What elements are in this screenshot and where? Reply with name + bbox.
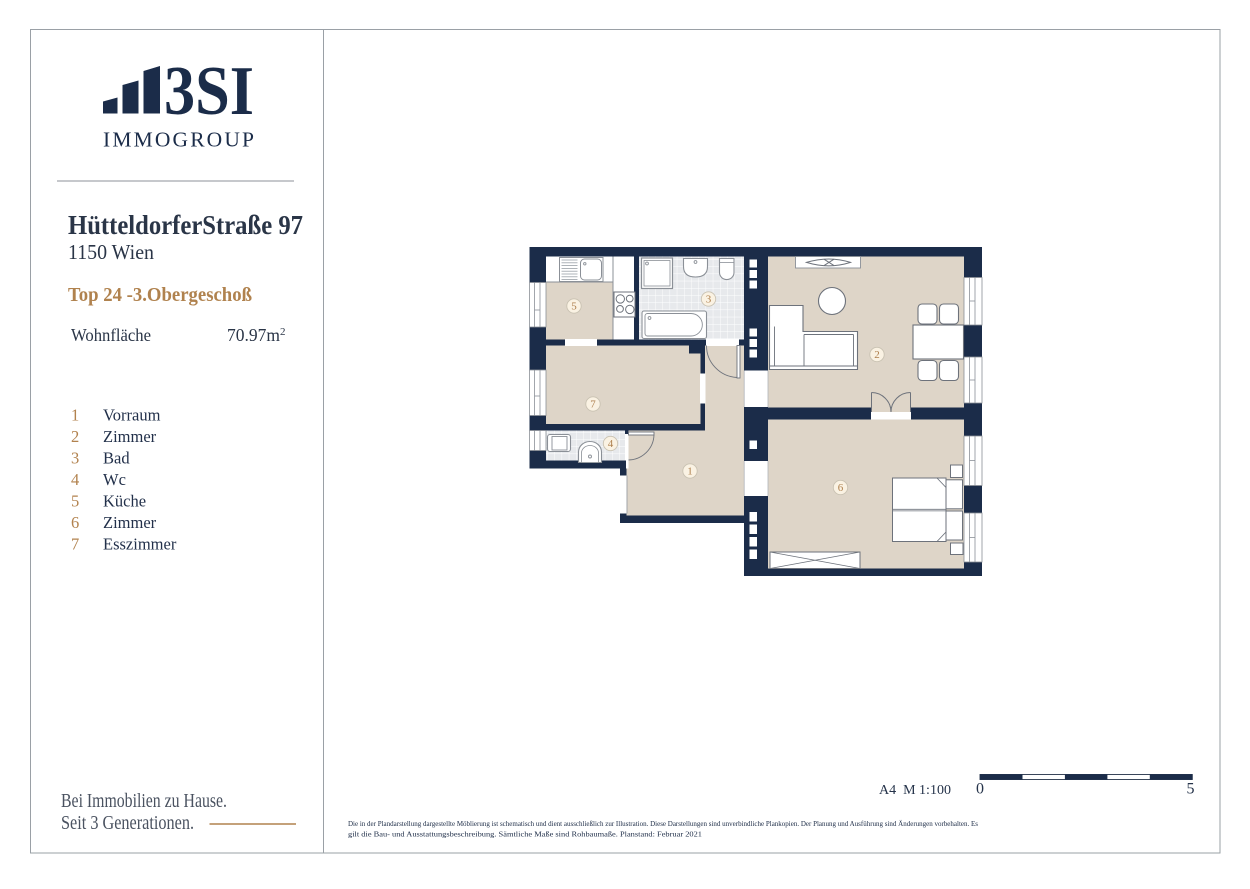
- svg-text:1: 1: [687, 466, 693, 478]
- svg-text:5: 5: [571, 301, 577, 313]
- svg-text:Die in der Plandarstellung dar: Die in der Plandarstellung dargestellte …: [348, 819, 978, 828]
- svg-text:7: 7: [71, 535, 79, 554]
- svg-text:IMMOGROUP: IMMOGROUP: [103, 128, 254, 152]
- svg-text:gilt die Bau- und Ausstattungs: gilt die Bau- und Ausstattungsbeschreibu…: [348, 830, 702, 839]
- svg-text:6: 6: [838, 482, 844, 494]
- svg-text:7: 7: [590, 399, 596, 411]
- svg-text:1: 1: [71, 406, 79, 425]
- svg-text:4: 4: [71, 470, 79, 489]
- svg-text:5: 5: [71, 492, 79, 511]
- svg-text:70.97m2: 70.97m2: [227, 325, 286, 345]
- svg-text:5: 5: [1187, 780, 1195, 797]
- svg-text:Top 24 -3.Obergeschoß: Top 24 -3.Obergeschoß: [68, 284, 252, 306]
- svg-text:Esszimmer: Esszimmer: [103, 535, 177, 554]
- svg-text:4: 4: [608, 438, 614, 450]
- svg-text:3SI: 3SI: [164, 53, 254, 130]
- svg-text:Wc: Wc: [103, 470, 126, 489]
- svg-text:HütteldorferStraße 97: HütteldorferStraße 97: [68, 210, 303, 240]
- svg-text:1150 Wien: 1150 Wien: [68, 240, 154, 264]
- svg-text:Bad: Bad: [103, 449, 130, 468]
- svg-text:0: 0: [976, 780, 984, 797]
- svg-text:Bei Immobilien zu Hause.: Bei Immobilien zu Hause.: [61, 790, 227, 812]
- svg-text:6: 6: [71, 513, 79, 532]
- svg-text:Wohnfläche: Wohnfläche: [71, 325, 151, 345]
- svg-text:Zimmer: Zimmer: [103, 513, 157, 532]
- svg-text:Vorraum: Vorraum: [103, 406, 161, 425]
- svg-text:Küche: Küche: [103, 492, 146, 511]
- svg-text:Zimmer: Zimmer: [103, 427, 157, 446]
- svg-text:2: 2: [874, 349, 880, 361]
- svg-text:Seit 3 Generationen.: Seit 3 Generationen.: [61, 812, 194, 834]
- svg-text:3: 3: [706, 294, 712, 306]
- svg-text:3: 3: [71, 449, 79, 468]
- svg-text:2: 2: [71, 427, 79, 446]
- svg-text:A4 M 1:100: A4 M 1:100: [879, 783, 951, 798]
